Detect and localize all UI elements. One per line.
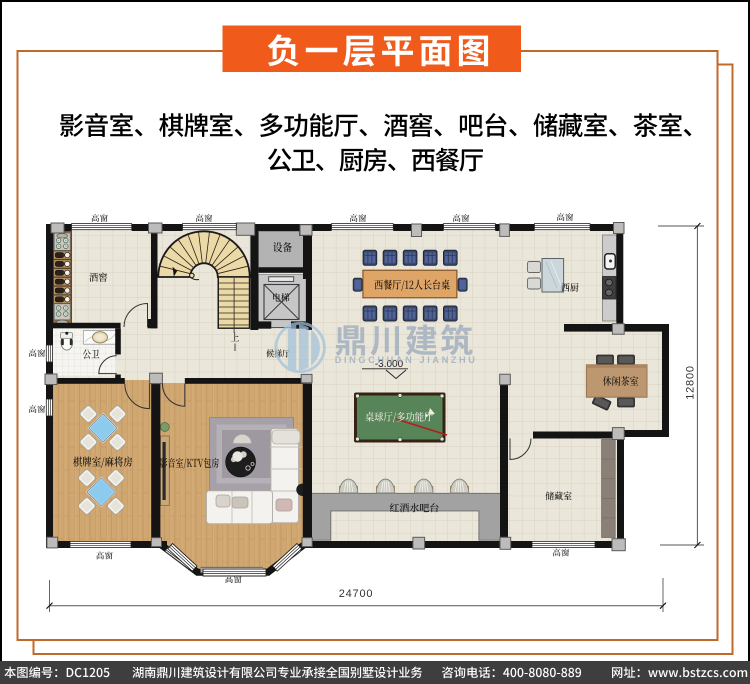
svg-text:12800: 12800 bbox=[685, 365, 697, 400]
svg-text:DINGCHUAN JIANZHU: DINGCHUAN JIANZHU bbox=[335, 355, 478, 365]
svg-text:24700: 24700 bbox=[339, 588, 374, 600]
